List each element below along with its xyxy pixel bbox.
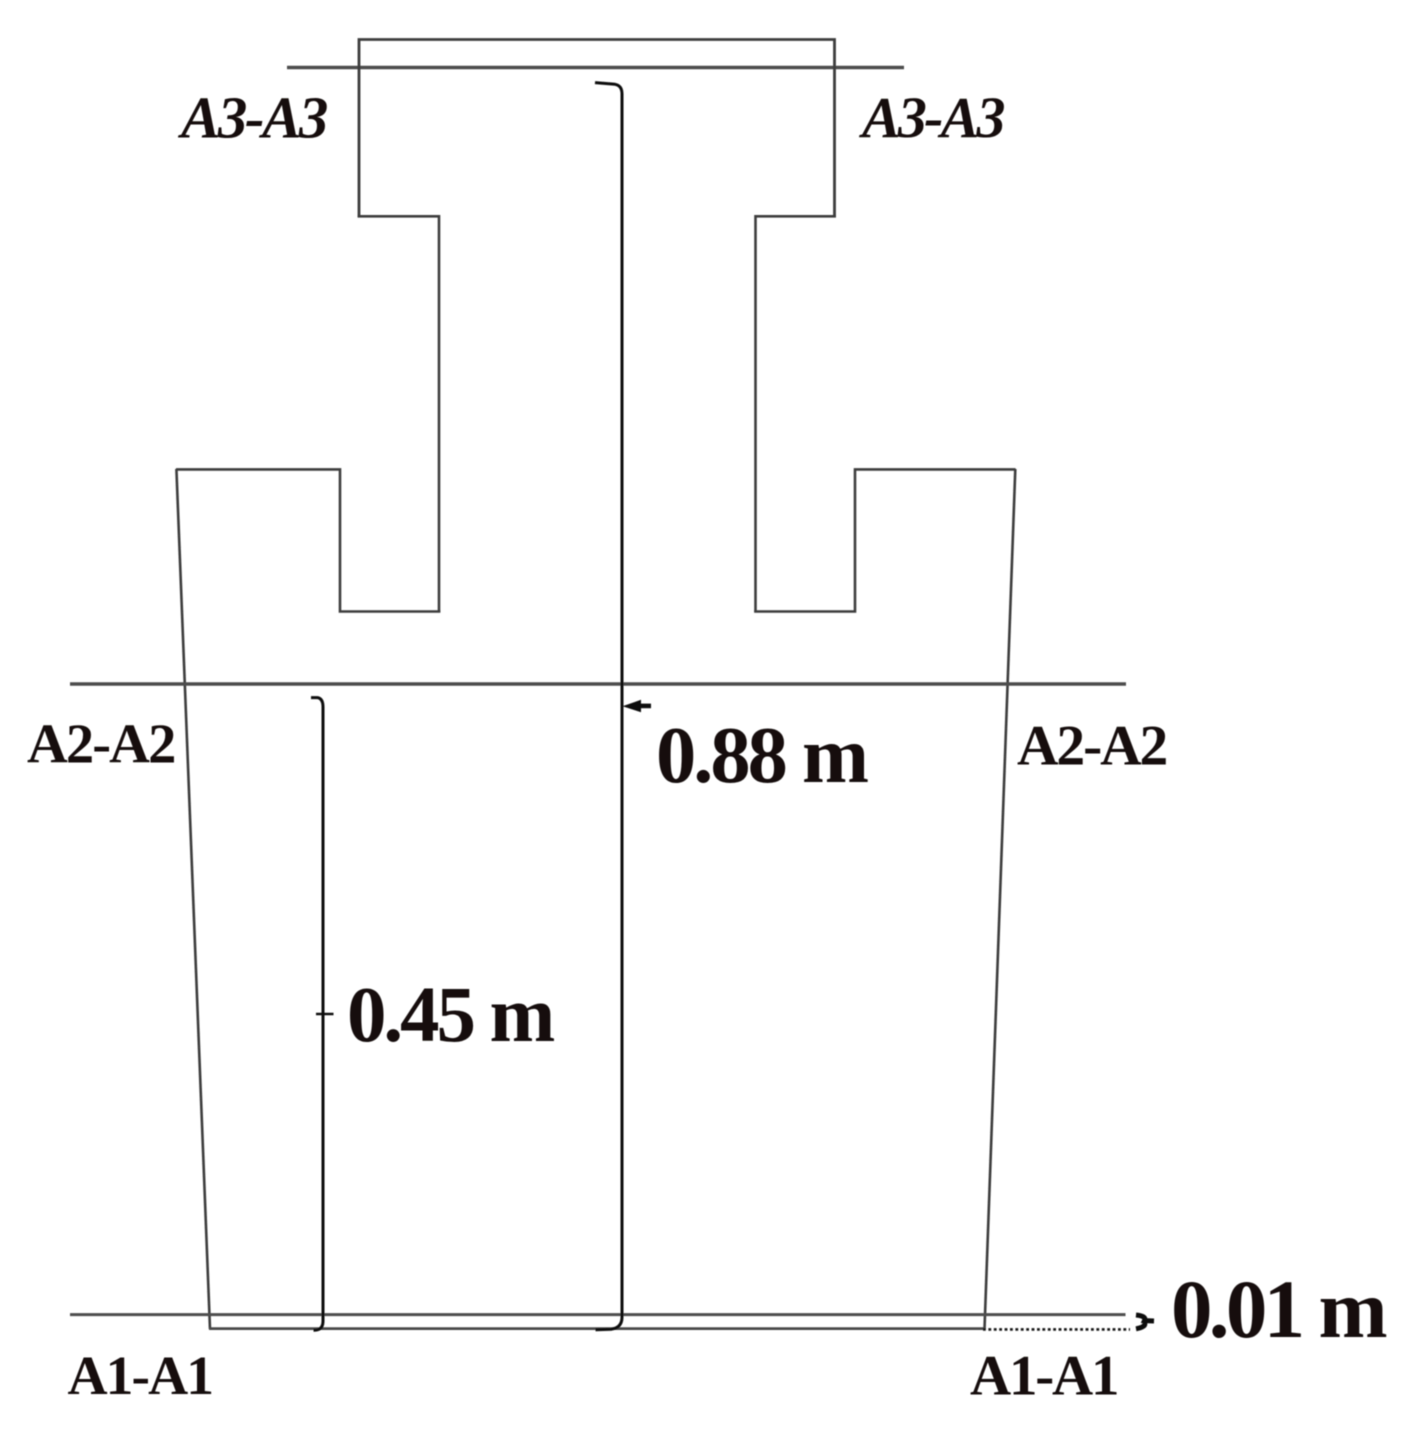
svg-text:0.88 m: 0.88 m — [656, 711, 868, 800]
svg-text:A1-A1: A1-A1 — [68, 1346, 213, 1407]
svg-text:A3-A3: A3-A3 — [177, 85, 327, 151]
svg-text:0.45 m: 0.45 m — [347, 972, 555, 1059]
svg-text:0.01 m: 0.01 m — [1171, 1263, 1387, 1355]
svg-text:A2-A2: A2-A2 — [1017, 715, 1167, 778]
svg-text:A2-A2: A2-A2 — [27, 714, 174, 776]
svg-text:A3-A3: A3-A3 — [859, 85, 1004, 150]
svg-text:A1-A1: A1-A1 — [970, 1345, 1117, 1408]
